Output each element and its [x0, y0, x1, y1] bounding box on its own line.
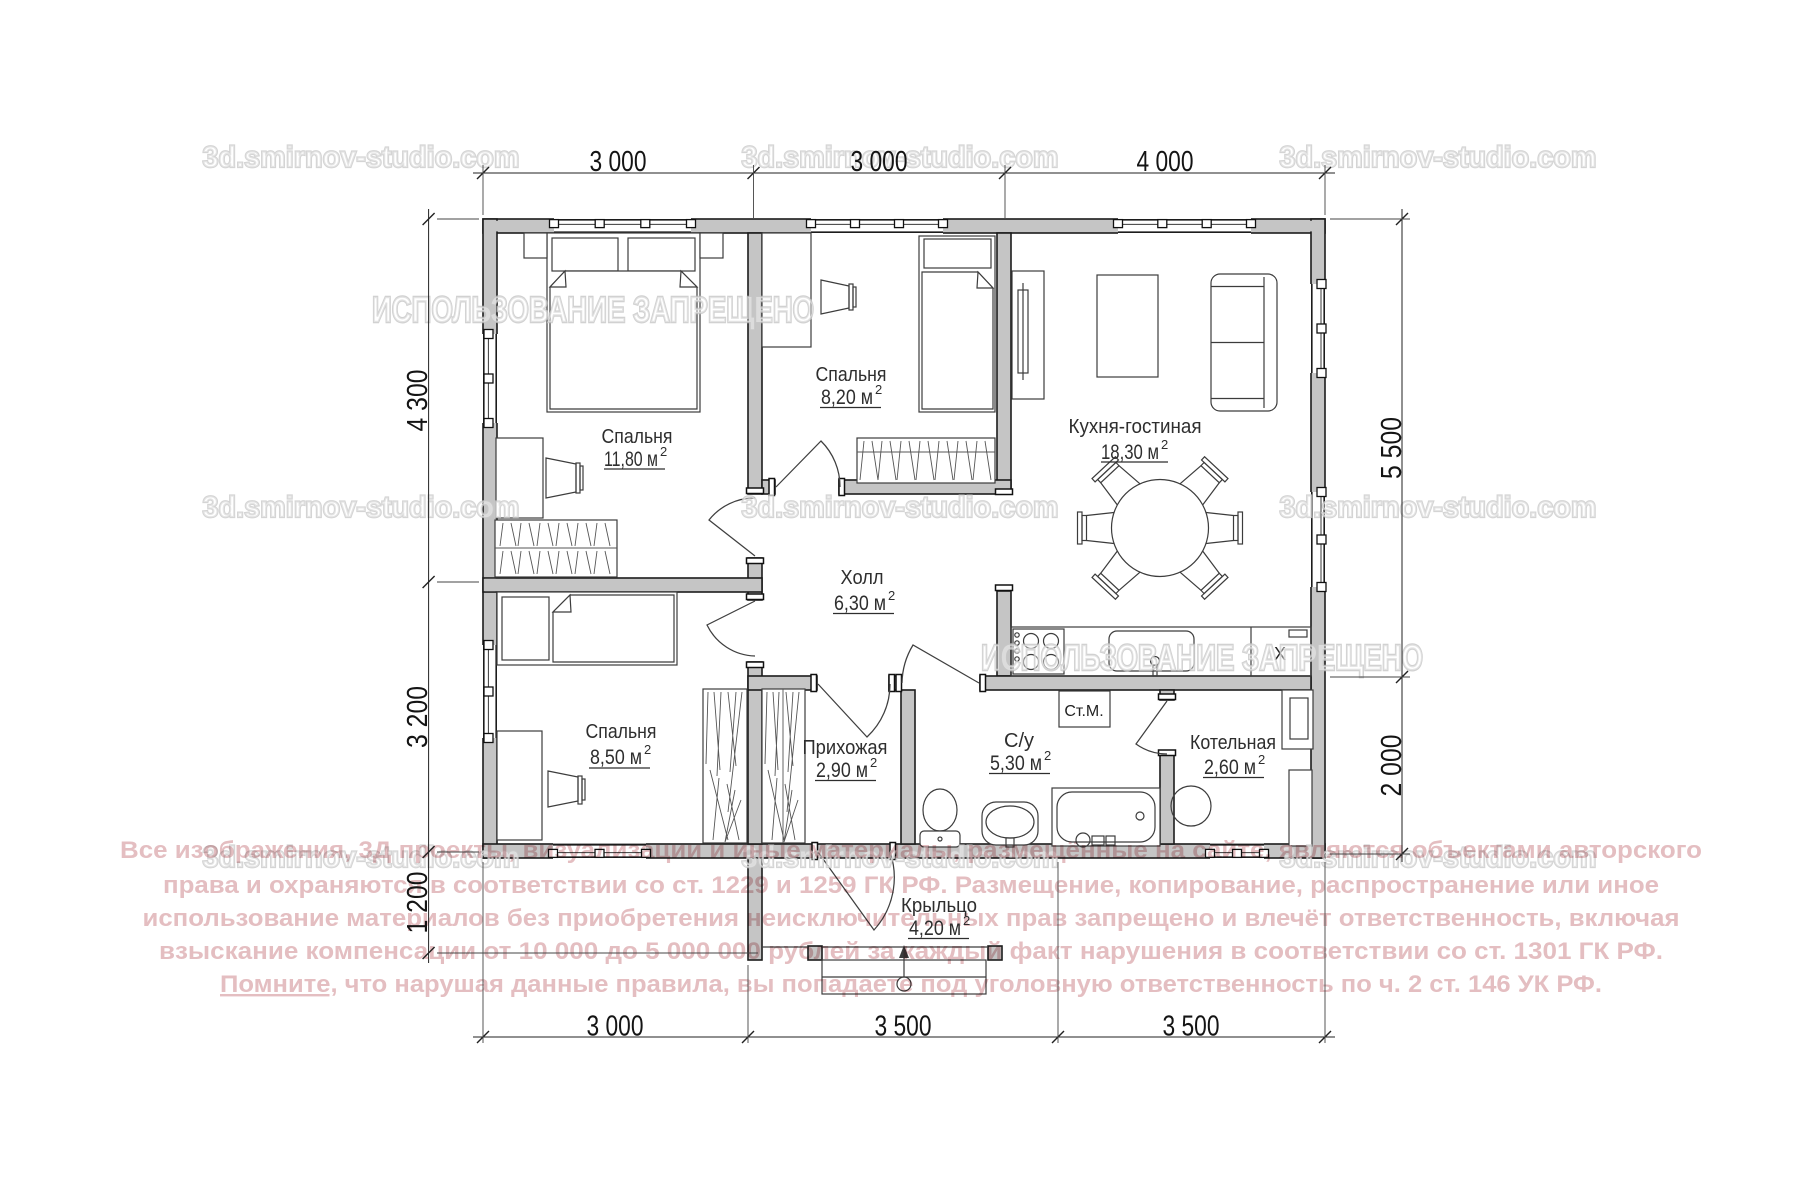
svg-text:2: 2	[870, 755, 877, 770]
svg-text:Холл: Холл	[841, 567, 884, 589]
svg-text:Ст.М.: Ст.М.	[1064, 703, 1103, 720]
svg-text:3 000: 3 000	[587, 1011, 644, 1043]
svg-text:3 200: 3 200	[402, 686, 434, 748]
svg-text:2: 2	[963, 913, 970, 928]
svg-text:2,60 м: 2,60 м	[1204, 756, 1256, 779]
svg-text:2: 2	[644, 742, 651, 757]
svg-text:2 000: 2 000	[1376, 735, 1408, 797]
svg-text:3d.smirnov-studio.com: 3d.smirnov-studio.com	[203, 141, 520, 174]
svg-text:3 000: 3 000	[590, 146, 647, 178]
svg-text:Котельная: Котельная	[1190, 732, 1276, 754]
svg-text:3 500: 3 500	[875, 1011, 932, 1043]
svg-text:4 300: 4 300	[402, 370, 434, 432]
svg-text:ИСПОЛЬЗОВАНИЕ ЗАПРЕЩЕНО: ИСПОЛЬЗОВАНИЕ ЗАПРЕЩЕНО	[372, 289, 814, 330]
svg-text:4,20 м: 4,20 м	[909, 917, 961, 940]
svg-text:Все изображения, 3Д проекты, в: Все изображения, 3Д проекты, визуализаци…	[120, 837, 1702, 864]
svg-text:3d.smirnov-studio.com: 3d.smirnov-studio.com	[742, 491, 1059, 524]
svg-text:8,20 м: 8,20 м	[821, 386, 873, 409]
svg-text:2,90 м: 2,90 м	[816, 759, 868, 782]
svg-text:Спальня: Спальня	[586, 721, 657, 743]
svg-text:3d.smirnov-studio.com: 3d.smirnov-studio.com	[1280, 491, 1597, 524]
svg-text:3 000: 3 000	[851, 146, 908, 178]
svg-text:3d.smirnov-studio.com: 3d.smirnov-studio.com	[1280, 141, 1597, 174]
svg-text:11,80 м: 11,80 м	[604, 448, 658, 471]
svg-text:Помните, что нарушая данные пр: Помните, что нарушая данные правила, вы …	[220, 971, 1602, 998]
svg-text:Кухня-гостиная: Кухня-гостиная	[1069, 416, 1202, 438]
svg-text:18,30 м: 18,30 м	[1101, 441, 1159, 464]
svg-text:3 500: 3 500	[1163, 1011, 1220, 1043]
svg-text:1 200: 1 200	[402, 872, 434, 934]
svg-text:2: 2	[875, 382, 882, 397]
svg-text:6,30 м: 6,30 м	[834, 592, 886, 615]
svg-text:С/у: С/у	[1004, 730, 1034, 752]
svg-text:ИСПОЛЬЗОВАНИЕ ЗАПРЕЩЕНО: ИСПОЛЬЗОВАНИЕ ЗАПРЕЩЕНО	[981, 637, 1423, 678]
svg-text:5 500: 5 500	[1376, 417, 1408, 479]
svg-text:2: 2	[888, 588, 895, 603]
svg-text:3d.smirnov-studio.com: 3d.smirnov-studio.com	[203, 491, 520, 524]
svg-text:2: 2	[1044, 748, 1051, 763]
svg-text:5,30 м: 5,30 м	[990, 752, 1042, 775]
svg-text:2: 2	[1161, 437, 1168, 452]
svg-text:8,50 м: 8,50 м	[590, 746, 642, 769]
svg-text:2: 2	[660, 444, 667, 459]
svg-text:4 000: 4 000	[1137, 146, 1194, 178]
svg-text:2: 2	[1258, 752, 1265, 767]
svg-text:взыскание компенсации от 10 00: взыскание компенсации от 10 000 до 5 000…	[159, 938, 1663, 965]
